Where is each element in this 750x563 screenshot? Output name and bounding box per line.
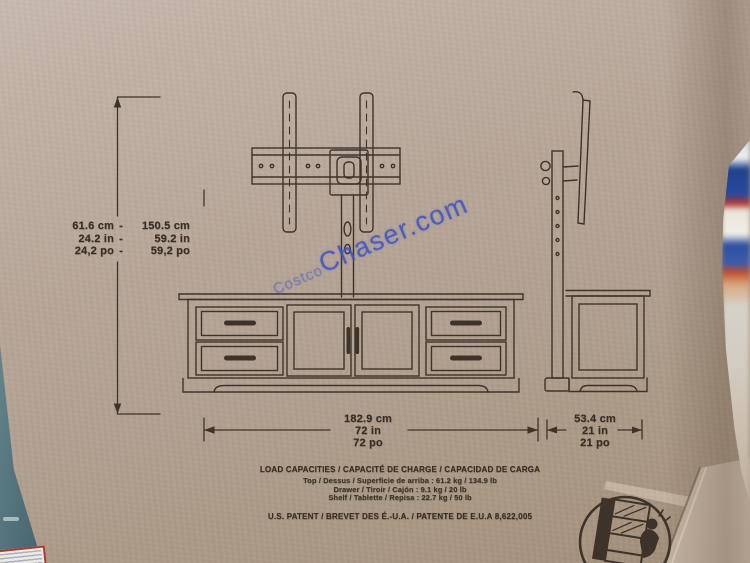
cabinet-side — [566, 291, 650, 392]
cabinet-front — [179, 294, 523, 392]
width-cm: 182.9 cm — [332, 413, 404, 425]
box-photo: 61.6 cm - 150.5 cm 24.2 in - 59.2 in 24,… — [0, 0, 750, 563]
dash: - — [114, 233, 128, 246]
depth-po: 21 po — [559, 437, 631, 449]
mount-pole-front — [342, 195, 354, 297]
width-dimensions-label: 182.9 cm 72 in 72 po — [332, 413, 404, 449]
tv-mount-side — [541, 92, 590, 391]
shipping-label-text-lines — [0, 550, 43, 563]
patent-text: U.S. PATENT / BREVET DES É.-U.A. / PATEN… — [170, 512, 630, 521]
width-po: 72 po — [332, 437, 404, 449]
dash: - — [114, 245, 128, 258]
load-capacity-row-shelf: Shelf / Tablette / Repisa : 22.7 kg / 50… — [170, 494, 630, 503]
height-max-in: 59.2 in — [128, 233, 190, 246]
width-in: 72 in — [332, 425, 404, 437]
height-min-in: 24.2 in — [58, 233, 114, 246]
height-min-po: 24,2 po — [58, 245, 114, 258]
depth-in: 21 in — [559, 425, 631, 437]
dash: - — [114, 220, 128, 233]
load-capacities-title: LOAD CAPACITIES / CAPACITÉ DE CHARGE / C… — [170, 465, 630, 474]
load-capacities-block: LOAD CAPACITIES / CAPACITÉ DE CHARGE / C… — [170, 465, 630, 521]
adjacent-box-text — [3, 517, 19, 521]
side-view — [541, 92, 650, 392]
depth-dimensions-label: 53.4 cm 21 in 21 po — [559, 413, 631, 449]
height-max-po: 59,2 po — [128, 245, 190, 258]
front-view — [179, 93, 523, 392]
height-max-cm: 150.5 cm — [128, 220, 190, 233]
height-min-cm: 61.6 cm — [58, 220, 114, 233]
height-dimensions-label: 61.6 cm - 150.5 cm 24.2 in - 59.2 in 24,… — [58, 220, 190, 258]
depth-cm: 53.4 cm — [559, 413, 631, 425]
tv-mount-front — [252, 93, 400, 232]
